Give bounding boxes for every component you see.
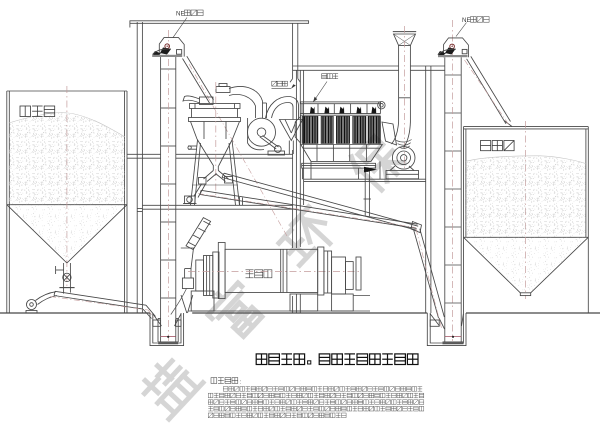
- svg-text:NE: NE: [462, 17, 471, 24]
- svg-text:NE: NE: [176, 11, 185, 18]
